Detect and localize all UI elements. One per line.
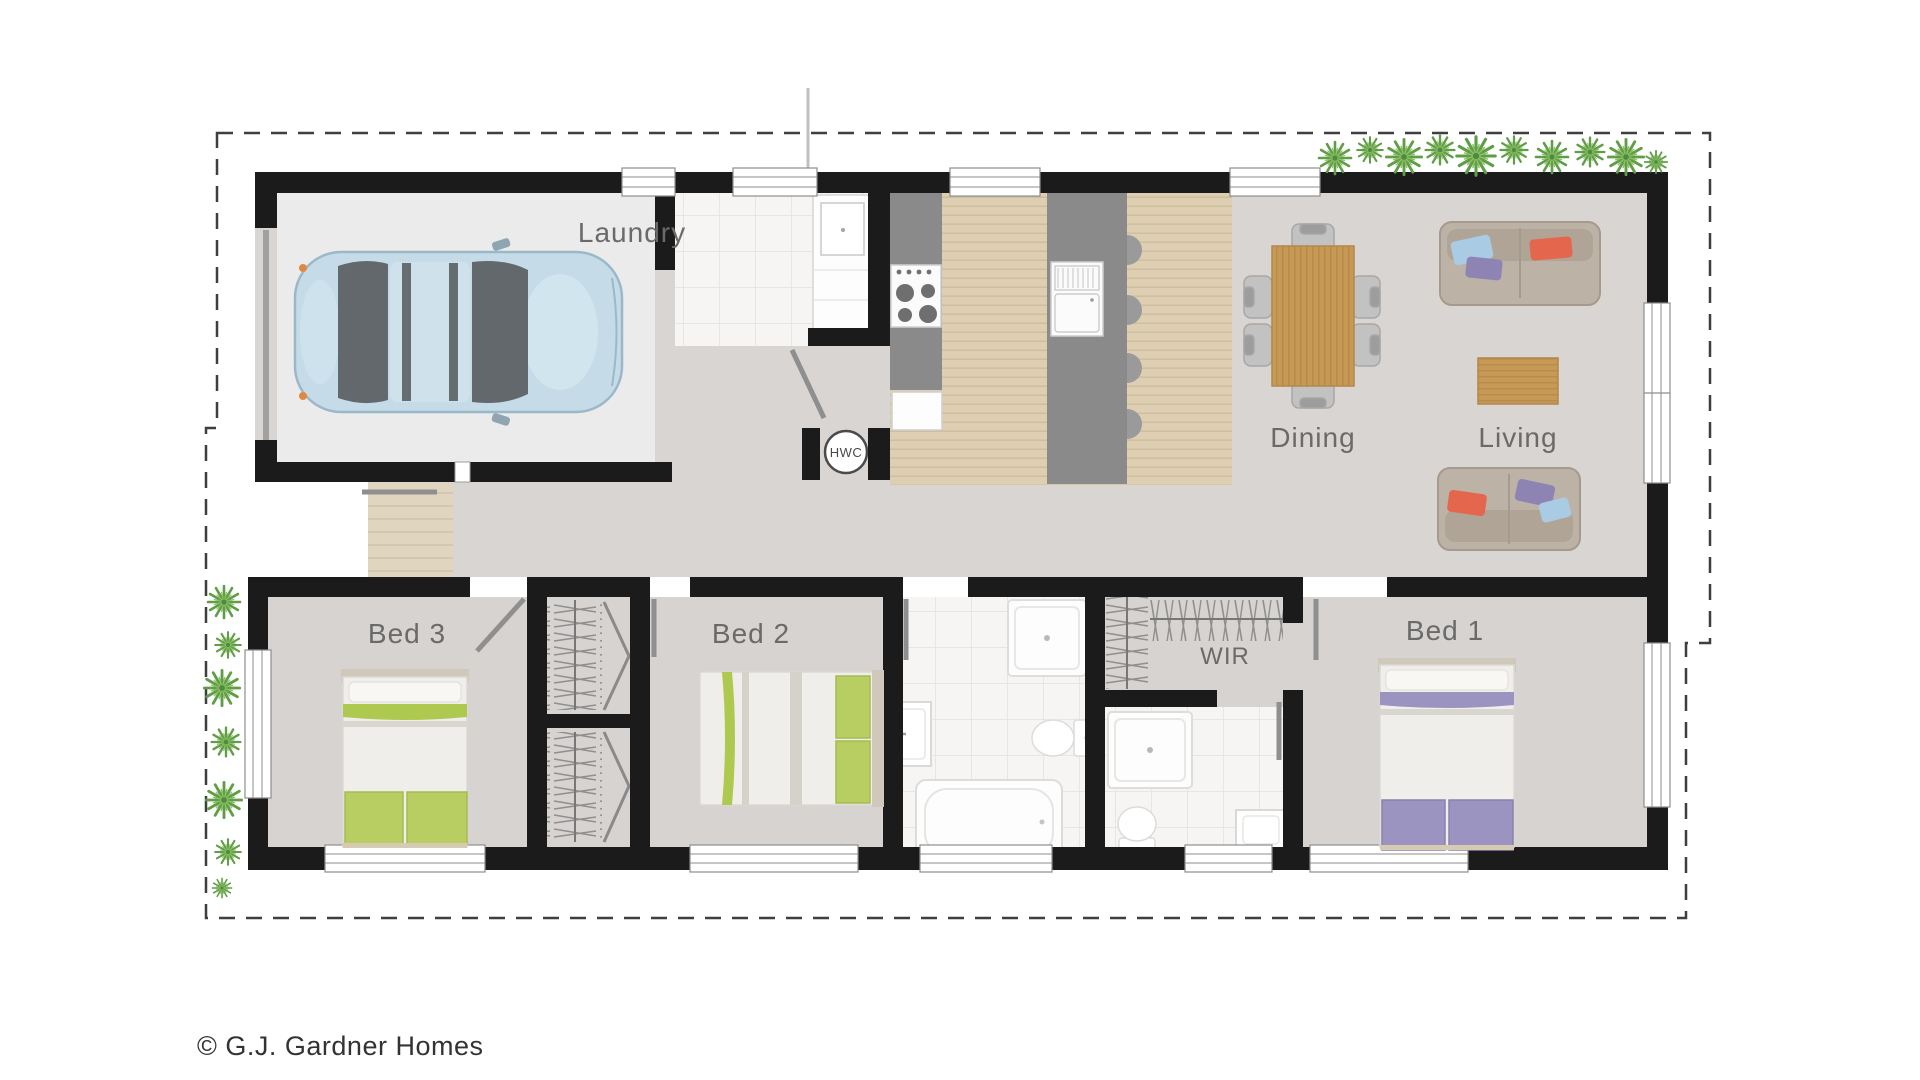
window-icon xyxy=(622,168,675,196)
ensuite-vanity-icon xyxy=(1236,810,1286,850)
window-icon xyxy=(1230,168,1320,196)
window-icon xyxy=(1644,643,1670,807)
label-bed1: Bed 1 xyxy=(1406,615,1484,646)
island-bench xyxy=(1047,193,1127,484)
label-laundry: Laundry xyxy=(578,217,686,248)
bed1-bed-icon xyxy=(1378,658,1516,850)
ensuite-shower-icon xyxy=(1108,712,1192,788)
window-icon xyxy=(950,168,1040,196)
coffee-table-icon xyxy=(1478,358,1558,404)
sofa-icon xyxy=(1440,222,1600,305)
label-living: Living xyxy=(1478,422,1557,453)
window-icon xyxy=(690,845,858,872)
laundry-fixtures xyxy=(813,195,870,332)
bed2-bed-icon xyxy=(700,670,884,807)
window-icon xyxy=(245,650,271,798)
sofa-icon xyxy=(1438,468,1580,550)
window-icon xyxy=(733,168,817,196)
dining-table-icon xyxy=(1272,246,1354,386)
kitchen-cabinet xyxy=(892,392,942,430)
toilet-icon xyxy=(1032,720,1094,756)
exterior-notch xyxy=(222,482,368,577)
bed3-bed-icon xyxy=(341,669,469,848)
window-icon xyxy=(325,845,485,872)
ensuite-toilet-icon xyxy=(1118,807,1156,852)
floor-plan-page: HWC xyxy=(0,0,1920,1080)
entry-door-frame xyxy=(455,462,470,482)
label-hwc: HWC xyxy=(830,445,863,460)
island-sink-icon xyxy=(1051,262,1103,336)
floor-plan-image: HWC xyxy=(0,0,1920,1080)
copyright-text: © G.J. Gardner Homes xyxy=(197,1031,483,1061)
window-icon xyxy=(920,845,1052,872)
label-wir: WIR xyxy=(1200,643,1250,670)
window-icon xyxy=(1185,845,1272,872)
label-dining: Dining xyxy=(1270,422,1355,453)
label-bed2: Bed 2 xyxy=(712,618,790,649)
window-icon xyxy=(1644,303,1670,483)
entry-porch-floor xyxy=(368,483,453,577)
cooktop-icon xyxy=(891,265,941,327)
car-icon xyxy=(295,237,622,426)
hot-water-cylinder: HWC xyxy=(825,431,867,473)
label-bed3: Bed 3 xyxy=(368,618,446,649)
shower-icon xyxy=(1008,600,1086,676)
